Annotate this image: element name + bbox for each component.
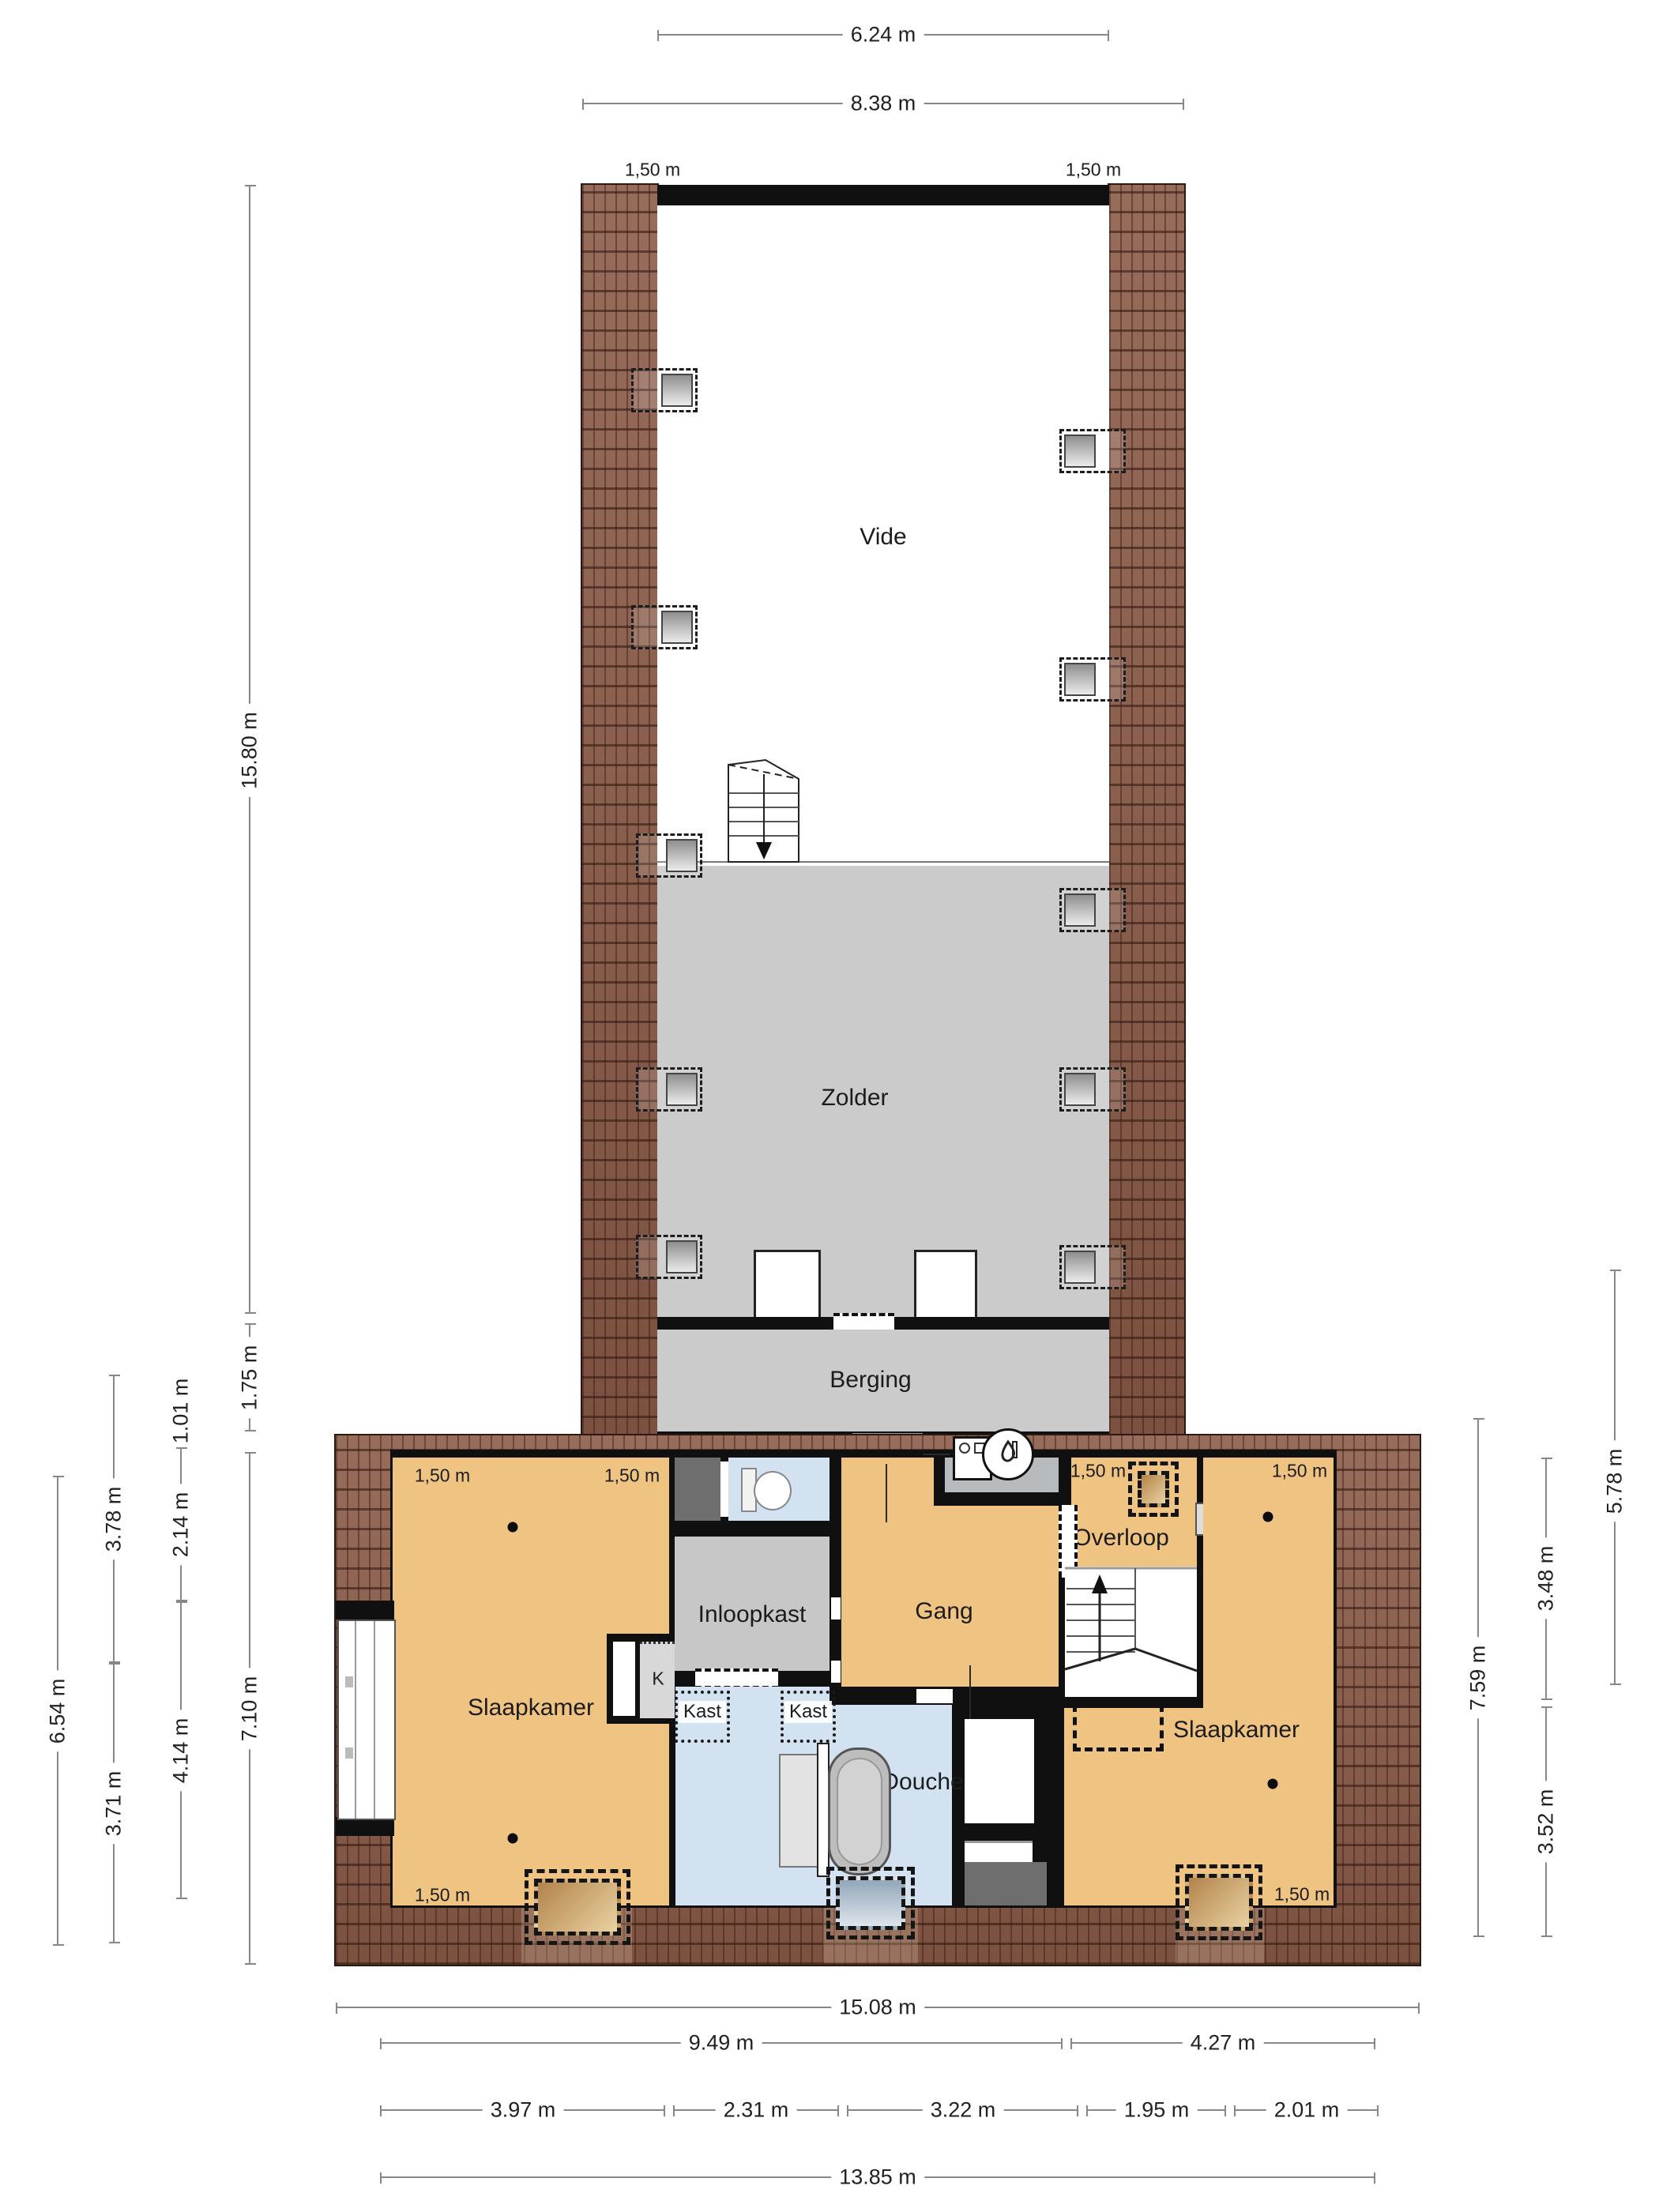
dim-label-2-31: 2.31 m <box>716 2097 797 2124</box>
dim-label-3-97: 3.97 m <box>483 2097 564 2124</box>
shower-niche-white <box>965 1719 1034 1823</box>
floorplan-canvas: 6.24 m 8.38 m 1,50 m 1,50 m Vide Zolder … <box>0 0 1659 2212</box>
dim-label-3-78: 3.78 m <box>100 1479 128 1560</box>
room-label-kast-left: Kast <box>679 1701 726 1723</box>
tick-mark <box>886 1464 887 1522</box>
dim-label-3-48: 3.48 m <box>1533 1538 1560 1619</box>
skylight-icon <box>636 1235 702 1279</box>
kast-left-box: Kast <box>675 1691 730 1743</box>
room-label-gang: Gang <box>915 1598 972 1625</box>
k-closet-white <box>613 1642 635 1716</box>
dim-label-9-49: 9.49 m <box>681 2030 762 2057</box>
dim-label-1-95: 1.95 m <box>1116 2097 1198 2124</box>
height-label-wall-left: 1,50 m <box>625 160 680 181</box>
dim-label-15-08: 15.08 m <box>831 1994 924 2022</box>
toilet-niche-dark <box>675 1458 720 1521</box>
height-label-sr-br: 1,50 m <box>1274 1884 1330 1905</box>
wc-bowl-icon <box>754 1471 792 1510</box>
skylight-icon <box>1059 1067 1126 1112</box>
height-label-overloop: 1,50 m <box>1070 1461 1126 1482</box>
skylight-icon <box>631 605 698 649</box>
roof-window-overloop <box>1128 1461 1179 1517</box>
skylight-icon <box>1059 888 1126 932</box>
skylight-icon <box>1059 429 1126 473</box>
dim-label-13-85: 13.85 m <box>831 2164 924 2191</box>
dim-label-1-01: 1.01 m <box>167 1371 195 1452</box>
dim-label-2-01: 2.01 m <box>1266 2097 1348 2124</box>
gang-door-gap-2 <box>831 1661 841 1683</box>
dim-label-top-inner: 6.24 m <box>843 21 924 49</box>
skylight-icon <box>636 833 702 878</box>
room-label-slaapkamer-right: Slaapkamer <box>1173 1717 1300 1744</box>
window-stub-top <box>336 1601 394 1619</box>
height-label-sl-tr: 1,50 m <box>604 1465 660 1487</box>
gang-door-gap-1 <box>831 1597 841 1619</box>
dim-label-6-54: 6.54 m <box>44 1671 72 1752</box>
tick-mark <box>923 1454 950 1455</box>
chimney-box-left <box>754 1250 821 1322</box>
room-label-zolder: Zolder <box>821 1085 888 1112</box>
room-label-k: K <box>652 1668 664 1690</box>
spotlight-dot <box>1263 1512 1273 1522</box>
skylight-icon <box>1059 657 1126 702</box>
chimney-box-right <box>914 1250 977 1320</box>
tick-mark <box>969 1665 971 1721</box>
spotlight-dot <box>508 1834 518 1844</box>
gang-douche-door <box>916 1689 953 1703</box>
dim-label-3-71: 3.71 m <box>100 1763 128 1845</box>
room-label-kast-right: Kast <box>784 1701 832 1723</box>
washstand-icon <box>779 1754 822 1868</box>
dim-label-top-outer: 8.38 m <box>843 90 924 118</box>
understairs-dashed <box>1073 1704 1164 1751</box>
room-label-douche: Douche <box>882 1769 963 1796</box>
roof-window-douche <box>826 1867 915 1939</box>
kast-right-box: Kast <box>781 1691 836 1743</box>
height-label-sl-bl: 1,50 m <box>415 1885 470 1906</box>
dim-label-7-59: 7.59 m <box>1465 1638 1492 1719</box>
stairs-down <box>728 758 800 863</box>
room-slaapkamer-right-a <box>1203 1458 1334 1905</box>
room-label-overloop: Overloop <box>1073 1525 1169 1552</box>
top-wall <box>657 185 1109 205</box>
spotlight-dot <box>1268 1779 1278 1789</box>
toilet-door <box>720 1461 728 1517</box>
dim-label-2-14: 2.14 m <box>167 1484 195 1566</box>
dim-label-3-52: 3.52 m <box>1533 1781 1560 1863</box>
skylight-icon <box>1059 1245 1126 1289</box>
roof-window-left-bedroom <box>525 1869 630 1945</box>
spotlight-dot <box>508 1522 518 1533</box>
height-label-sl-tl: 1,50 m <box>415 1465 470 1487</box>
dim-label-15-80: 15.80 m <box>236 704 264 797</box>
room-label-inloopkast: Inloopkast <box>698 1601 807 1628</box>
height-label-sr-tr: 1,50 m <box>1272 1461 1327 1482</box>
skylight-icon <box>631 368 698 412</box>
dim-label-4-27: 4.27 m <box>1183 2030 1264 2057</box>
dim-label-7-10: 7.10 m <box>236 1668 264 1750</box>
bathtub-icon <box>828 1747 891 1875</box>
dim-label-1-75: 1.75 m <box>236 1337 264 1419</box>
roof-window-right-bedroom <box>1176 1864 1262 1940</box>
room-label-berging: Berging <box>829 1367 911 1394</box>
room-label-vide: Vide <box>860 524 907 551</box>
skylight-icon <box>636 1067 702 1112</box>
dim-label-4-14: 4.14 m <box>167 1710 195 1792</box>
window-left-wall <box>337 1619 396 1820</box>
room-gang <box>841 1506 1059 1687</box>
dim-label-3-22: 3.22 m <box>923 2097 1004 2124</box>
height-label-wall-right: 1,50 m <box>1066 160 1121 181</box>
dim-label-5-78: 5.78 m <box>1601 1441 1629 1522</box>
niche-dark <box>965 1862 1047 1905</box>
stairs-up <box>1065 1567 1197 1697</box>
niche-window <box>965 1841 1033 1864</box>
boiler-icon <box>982 1428 1034 1480</box>
room-label-slaapkamer-left: Slaapkamer <box>468 1695 594 1721</box>
